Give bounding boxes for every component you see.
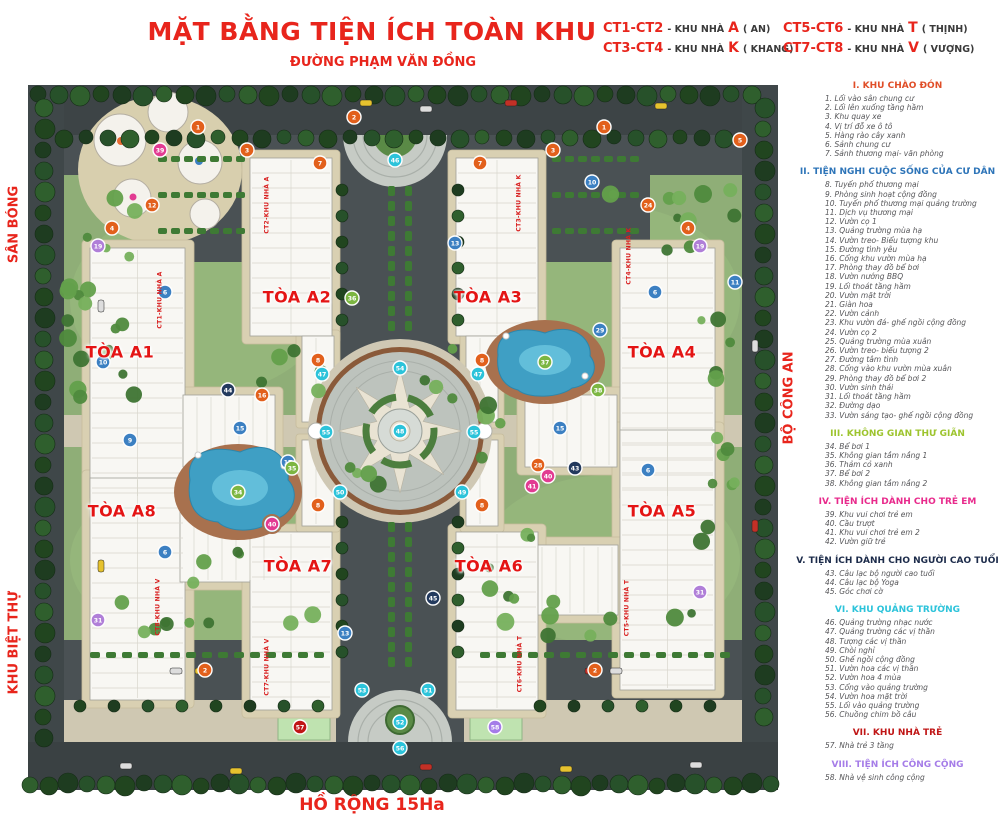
building-key-column-1: CT1-CT2 - KHU NHÀ A ( AN) CT3-CT4 - KHU … (603, 20, 781, 56)
svg-text:4: 4 (686, 225, 691, 232)
svg-text:55: 55 (470, 429, 479, 436)
map-marker-40: 40 (265, 517, 279, 531)
ct-label-a3: CT3-KHU NHÀ K (516, 174, 523, 231)
svg-text:15: 15 (236, 425, 245, 432)
building-key-entry: CT3-CT4 - KHU NHÀ K ( KHANG) (603, 40, 781, 56)
ct-label-a8: CT8-KHU NHÀ V (155, 578, 162, 635)
legend-item: 25. Quảng trường mùa xuân (795, 337, 1000, 346)
svg-text:39: 39 (156, 147, 165, 154)
ct-label-a2: CT2-KHU NHÀ A (264, 176, 271, 233)
legend-item: 21. Giàn hoa (795, 300, 1000, 309)
legend-item: 14. Vườn treo- Biểu tượng khu (795, 236, 1000, 245)
map-marker-10: 10 (585, 175, 599, 189)
map-marker-3: 3 (240, 143, 254, 157)
tower-label-a1: TÒA A1 (86, 343, 155, 362)
legend-item: 54. Vườn hoa mặt trời (795, 692, 1000, 701)
map-marker-19: 19 (693, 239, 707, 253)
svg-text:3: 3 (551, 147, 555, 154)
svg-text:2: 2 (203, 667, 207, 674)
legend-item: 5. Hàng rào cây xanh (795, 131, 1000, 140)
legend-item: 17. Phòng thay đồ bể bơi (795, 263, 1000, 272)
legend-item: 11. Dịch vụ thương mại (795, 208, 1000, 217)
key-letter: A (728, 20, 739, 36)
legend-item: 13. Quảng trường mùa hạ (795, 226, 1000, 235)
svg-text:34: 34 (234, 489, 243, 496)
legend-item: 46. Quảng trường nhạc nước (795, 618, 1000, 627)
key-prefix: - KHU NHÀ (667, 24, 724, 35)
svg-text:9: 9 (128, 437, 132, 444)
map-marker-31: 31 (693, 585, 707, 599)
map-marker-46: 46 (388, 153, 402, 167)
map-marker-2: 2 (588, 663, 602, 677)
ct-label-a7: CT7-KHU NHÀ V (264, 638, 271, 695)
legend-item: 10. Tuyến phố thương mại quảng trường (795, 199, 1000, 208)
legend-item: 30. Vườn sinh thái (795, 383, 1000, 392)
svg-text:16: 16 (258, 392, 267, 399)
map-marker-24: 24 (641, 198, 655, 212)
map-marker-48: 48 (393, 424, 407, 438)
tower-label-a8: TÒA A8 (88, 502, 157, 521)
legend-item: 12. Vườn cọ 1 (795, 217, 1000, 226)
svg-text:6: 6 (646, 467, 650, 474)
tower-label-a5: TÒA A5 (628, 502, 697, 521)
svg-text:6: 6 (653, 289, 657, 296)
svg-text:45: 45 (429, 595, 438, 602)
svg-text:10: 10 (588, 179, 597, 186)
building-key-entry: CT1-CT2 - KHU NHÀ A ( AN) (603, 20, 781, 36)
svg-text:6: 6 (163, 549, 167, 556)
legend-item: 37. Bể bơi 2 (795, 469, 1000, 478)
map-marker-7: 7 (313, 156, 327, 170)
svg-text:5: 5 (738, 137, 742, 144)
map-marker-45: 45 (426, 591, 440, 605)
building-key-entry: CT7-CT8 - KHU NHÀ V ( VƯỢNG) (783, 40, 993, 56)
legend-item: 34. Bể bơi 1 (795, 442, 1000, 451)
tower-label-a3: TÒA A3 (454, 288, 523, 307)
key-prefix: - KHU NHÀ (847, 44, 904, 55)
svg-text:24: 24 (644, 202, 653, 209)
map-marker-3: 3 (546, 143, 560, 157)
map-marker-29: 29 (593, 323, 607, 337)
svg-text:8: 8 (316, 502, 320, 509)
map-marker-16: 16 (255, 388, 269, 402)
map-marker-28: 28 (531, 458, 545, 472)
legend-section-header: I. KHU CHÀO ĐÓN (795, 80, 1000, 92)
street-label-san-bong: SÂN BÓNG (7, 185, 22, 265)
map-marker-2: 2 (198, 663, 212, 677)
map-marker-1: 1 (191, 120, 205, 134)
map-marker-6: 6 (648, 285, 662, 299)
map-marker-9: 9 (123, 433, 137, 447)
legend-item: 3. Khu quay xe (795, 112, 1000, 121)
map-marker-8: 8 (475, 498, 489, 512)
tower-label-a2: TÒA A2 (263, 288, 332, 307)
page-title: MẶT BẰNG TIỆN ÍCH TOÀN KHU (142, 17, 602, 46)
map-marker-54: 54 (393, 361, 407, 375)
svg-text:50: 50 (336, 489, 345, 496)
svg-text:47: 47 (318, 371, 327, 378)
map-marker-55: 55 (467, 425, 481, 439)
svg-text:29: 29 (596, 327, 605, 334)
legend-item: 45. Góc chơi cờ (795, 587, 1000, 596)
ct-label-a6: CT6-KHU NHÀ T (517, 636, 524, 693)
legend-item: 8. Tuyến phố thương mại (795, 180, 1000, 189)
legend-item: 49. Chòi nghỉ (795, 646, 1000, 655)
map-marker-1: 1 (597, 120, 611, 134)
svg-text:54: 54 (396, 365, 405, 372)
map-marker-50: 50 (333, 485, 347, 499)
map-marker-8: 8 (475, 353, 489, 367)
legend-item: 36. Thảm cỏ xanh (795, 460, 1000, 469)
legend-item: 55. Lối vào quảng trường (795, 701, 1000, 710)
map-marker-53: 53 (355, 683, 369, 697)
legend-item: 28. Cổng vào khu vườn mùa xuân (795, 364, 1000, 373)
svg-text:35: 35 (288, 465, 297, 472)
legend-item: 19. Lối thoát tầng hầm (795, 282, 1000, 291)
legend-item: 31. Lối thoát tầng hầm (795, 392, 1000, 401)
building-key-entry: CT5-CT6 - KHU NHÀ T ( THỊNH) (783, 20, 993, 36)
legend-item: 27. Đường tâm tình (795, 355, 1000, 364)
key-letter: V (908, 40, 919, 56)
svg-text:13: 13 (341, 630, 350, 637)
legend-item: 40. Cầu trượt (795, 519, 1000, 528)
legend-item: 42. Vườn giữ trẻ (795, 537, 1000, 546)
map-marker-51: 51 (421, 683, 435, 697)
svg-text:55: 55 (322, 429, 331, 436)
svg-text:43: 43 (571, 465, 580, 472)
key-code: CT1-CT2 (603, 21, 663, 36)
svg-text:56: 56 (396, 745, 405, 752)
svg-text:7: 7 (478, 160, 482, 167)
map-marker-6: 6 (641, 463, 655, 477)
legend-item: 2. Lối lên xuống tầng hầm (795, 103, 1000, 112)
svg-text:19: 19 (696, 243, 705, 250)
legend-item: 53. Cổng vào quảng trường (795, 683, 1000, 692)
svg-text:8: 8 (480, 502, 484, 509)
legend-panel: I. KHU CHÀO ĐÓN1. Lối vào sân chung cư2.… (795, 80, 1000, 782)
legend-item: 4. Vị trí đỗ xe ô tô (795, 122, 1000, 131)
legend-item: 35. Không gian tắm nắng 1 (795, 451, 1000, 460)
legend-item: 29. Phòng thay đồ bể bơi 2 (795, 374, 1000, 383)
svg-text:12: 12 (148, 202, 157, 209)
map-marker-15: 15 (233, 421, 247, 435)
key-code: CT5-CT6 (783, 21, 843, 36)
legend-item: 56. Chuồng chim bồ câu (795, 710, 1000, 719)
legend-item: 9. Phòng sinh hoạt cộng đồng (795, 190, 1000, 199)
legend-item: 7. Sảnh thương mại- văn phòng (795, 149, 1000, 158)
svg-text:19: 19 (94, 243, 103, 250)
legend-item: 43. Câu lạc bộ người cao tuổi (795, 569, 1000, 578)
map-marker-40: 40 (541, 469, 555, 483)
ct-label-a5: CT5-KHU NHÀ T (624, 580, 631, 637)
svg-text:46: 46 (391, 157, 400, 164)
map-marker-8: 8 (311, 353, 325, 367)
svg-text:31: 31 (94, 617, 103, 624)
legend-section-header: IV. TIỆN ÍCH DÀNH CHO TRẺ EM (795, 496, 1000, 508)
svg-text:4: 4 (110, 225, 115, 232)
svg-text:8: 8 (316, 357, 320, 364)
svg-text:49: 49 (458, 489, 467, 496)
street-label-khu-biet-thu: KHU BIỆT THỰ (7, 595, 22, 695)
map-marker-47: 47 (471, 367, 485, 381)
svg-text:28: 28 (534, 462, 543, 469)
map-marker-52: 52 (393, 715, 407, 729)
svg-text:2: 2 (352, 114, 356, 121)
svg-text:48: 48 (396, 428, 405, 435)
key-code: CT3-CT4 (603, 41, 663, 56)
tower-label-a6: TÒA A6 (455, 557, 524, 576)
legend-item: 57. Nhà trẻ 3 tầng (795, 741, 1000, 750)
map-marker-8: 8 (311, 498, 325, 512)
lake-label: HỒ RỘNG 15Ha (272, 795, 472, 815)
svg-text:3: 3 (245, 147, 249, 154)
map-marker-19: 19 (91, 239, 105, 253)
legend-section-header: V. TIỆN ÍCH DÀNH CHO NGƯỜI CAO TUỔI (795, 555, 1000, 567)
map-marker-55: 55 (319, 425, 333, 439)
svg-text:41: 41 (528, 483, 537, 490)
legend-item: 22. Vườn cảnh (795, 309, 1000, 318)
legend-item: 15. Đường tình yêu (795, 245, 1000, 254)
key-letter: T (908, 20, 918, 36)
svg-text:52: 52 (396, 719, 405, 726)
legend-item: 47. Quảng trường các vị thần (795, 627, 1000, 636)
map-marker-56: 56 (393, 741, 407, 755)
legend-item: 41. Khu vui chơi trẻ em 2 (795, 528, 1000, 537)
legend-item: 58. Nhà vệ sinh công cộng (795, 773, 1000, 782)
key-name: ( THỊNH) (922, 24, 968, 35)
map-marker-44: 44 (221, 383, 235, 397)
legend-item: 32. Đường dạo (795, 401, 1000, 410)
svg-text:37: 37 (541, 359, 550, 366)
legend-section-header: III. KHÔNG GIAN THƯ GIÃN (795, 428, 1000, 440)
legend-item: 6. Sảnh chung cư (795, 140, 1000, 149)
svg-text:44: 44 (224, 387, 233, 394)
ct-label-a4: CT4-KHU NHÀ K (626, 227, 633, 284)
map-marker-37: 37 (538, 355, 552, 369)
map-marker-34: 34 (231, 485, 245, 499)
svg-text:51: 51 (424, 687, 433, 694)
svg-text:15: 15 (556, 425, 565, 432)
legend-item: 50. Ghế ngồi cộng đồng (795, 655, 1000, 664)
map-marker-49: 49 (455, 485, 469, 499)
svg-text:7: 7 (318, 160, 322, 167)
legend-item: 33. Vườn sáng tạo- ghế ngồi cộng đồng (795, 411, 1000, 420)
legend-item: 26. Vườn treo- biểu tượng 2 (795, 346, 1000, 355)
map-marker-31: 31 (91, 613, 105, 627)
legend-item: 23. Khu vườn đá- ghế ngồi cộng đồng (795, 318, 1000, 327)
legend-section-header: VI. KHU QUẢNG TRƯỜNG (795, 604, 1000, 616)
map-marker-7: 7 (473, 156, 487, 170)
map-marker-38: 38 (591, 383, 605, 397)
map-marker-4: 4 (105, 221, 119, 235)
svg-text:2: 2 (593, 667, 597, 674)
key-prefix: - KHU NHÀ (847, 24, 904, 35)
svg-text:57: 57 (296, 724, 305, 731)
svg-text:36: 36 (348, 295, 357, 302)
map-marker-11: 11 (728, 275, 742, 289)
map-marker-47: 47 (315, 367, 329, 381)
map-marker-39: 39 (153, 143, 167, 157)
key-prefix: - KHU NHÀ (667, 44, 724, 55)
legend-item: 1. Lối vào sân chung cư (795, 94, 1000, 103)
tower-label-a7: TÒA A7 (264, 557, 333, 576)
key-name: ( AN) (743, 24, 770, 35)
legend-item: 39. Khu vui chơi trẻ em (795, 510, 1000, 519)
ct-label-a1: CT1-KHU NHÀ A (157, 271, 164, 328)
tower-label-a4: TÒA A4 (628, 343, 697, 362)
legend-item: 24. Vườn cọ 2 (795, 328, 1000, 337)
map-marker-2: 2 (347, 110, 361, 124)
svg-text:58: 58 (491, 724, 500, 731)
map-marker-13: 13 (448, 236, 462, 250)
svg-text:13: 13 (451, 240, 460, 247)
legend-item: 18. Vườn nướng BBQ (795, 272, 1000, 281)
legend-item: 52. Vườn hoa 4 mùa (795, 673, 1000, 682)
key-name: ( VƯỢNG) (923, 44, 974, 55)
building-key-column-2: CT5-CT6 - KHU NHÀ T ( THỊNH) CT7-CT8 - K… (783, 20, 993, 56)
svg-text:8: 8 (480, 357, 484, 364)
key-code: CT7-CT8 (783, 41, 843, 56)
legend-item: 51. Vườn hoa các vị thần (795, 664, 1000, 673)
svg-text:31: 31 (696, 589, 705, 596)
map-marker-36: 36 (345, 291, 359, 305)
svg-text:40: 40 (544, 473, 553, 480)
map-marker-35: 35 (285, 461, 299, 475)
legend-item: 16. Cổng khu vườn mùa hạ (795, 254, 1000, 263)
map-marker-58: 58 (488, 720, 502, 734)
map-marker-43: 43 (568, 461, 582, 475)
street-label-top: ĐƯỜNG PHẠM VĂN ĐỒNG (233, 55, 533, 70)
map-marker-5: 5 (733, 133, 747, 147)
legend-item: 48. Tượng các vị thần (795, 637, 1000, 646)
svg-text:1: 1 (602, 124, 606, 131)
svg-text:53: 53 (358, 687, 367, 694)
map-marker-12: 12 (145, 198, 159, 212)
map-marker-57: 57 (293, 720, 307, 734)
legend-section-header: VII. KHU NHÀ TRẺ (795, 727, 1000, 739)
legend-section-header: II. TIỆN NGHI CUỘC SỐNG CỦA CƯ DÂN (795, 166, 1000, 178)
legend-item: 38. Không gian tắm nắng 2 (795, 479, 1000, 488)
key-letter: K (728, 40, 739, 56)
map-marker-13: 13 (338, 626, 352, 640)
svg-text:11: 11 (731, 279, 740, 286)
map-marker-15: 15 (553, 421, 567, 435)
map-marker-4: 4 (681, 221, 695, 235)
legend-section-header: VIII. TIỆN ÍCH CÔNG CỘNG (795, 759, 1000, 771)
svg-text:1: 1 (196, 124, 200, 131)
map-marker-41: 41 (525, 479, 539, 493)
legend-item: 20. Vườn mặt trời (795, 291, 1000, 300)
svg-text:40: 40 (268, 521, 277, 528)
svg-text:38: 38 (594, 387, 603, 394)
legend-item: 44. Câu lạc bộ Yoga (795, 578, 1000, 587)
map-marker-6: 6 (158, 545, 172, 559)
svg-text:47: 47 (474, 371, 483, 378)
